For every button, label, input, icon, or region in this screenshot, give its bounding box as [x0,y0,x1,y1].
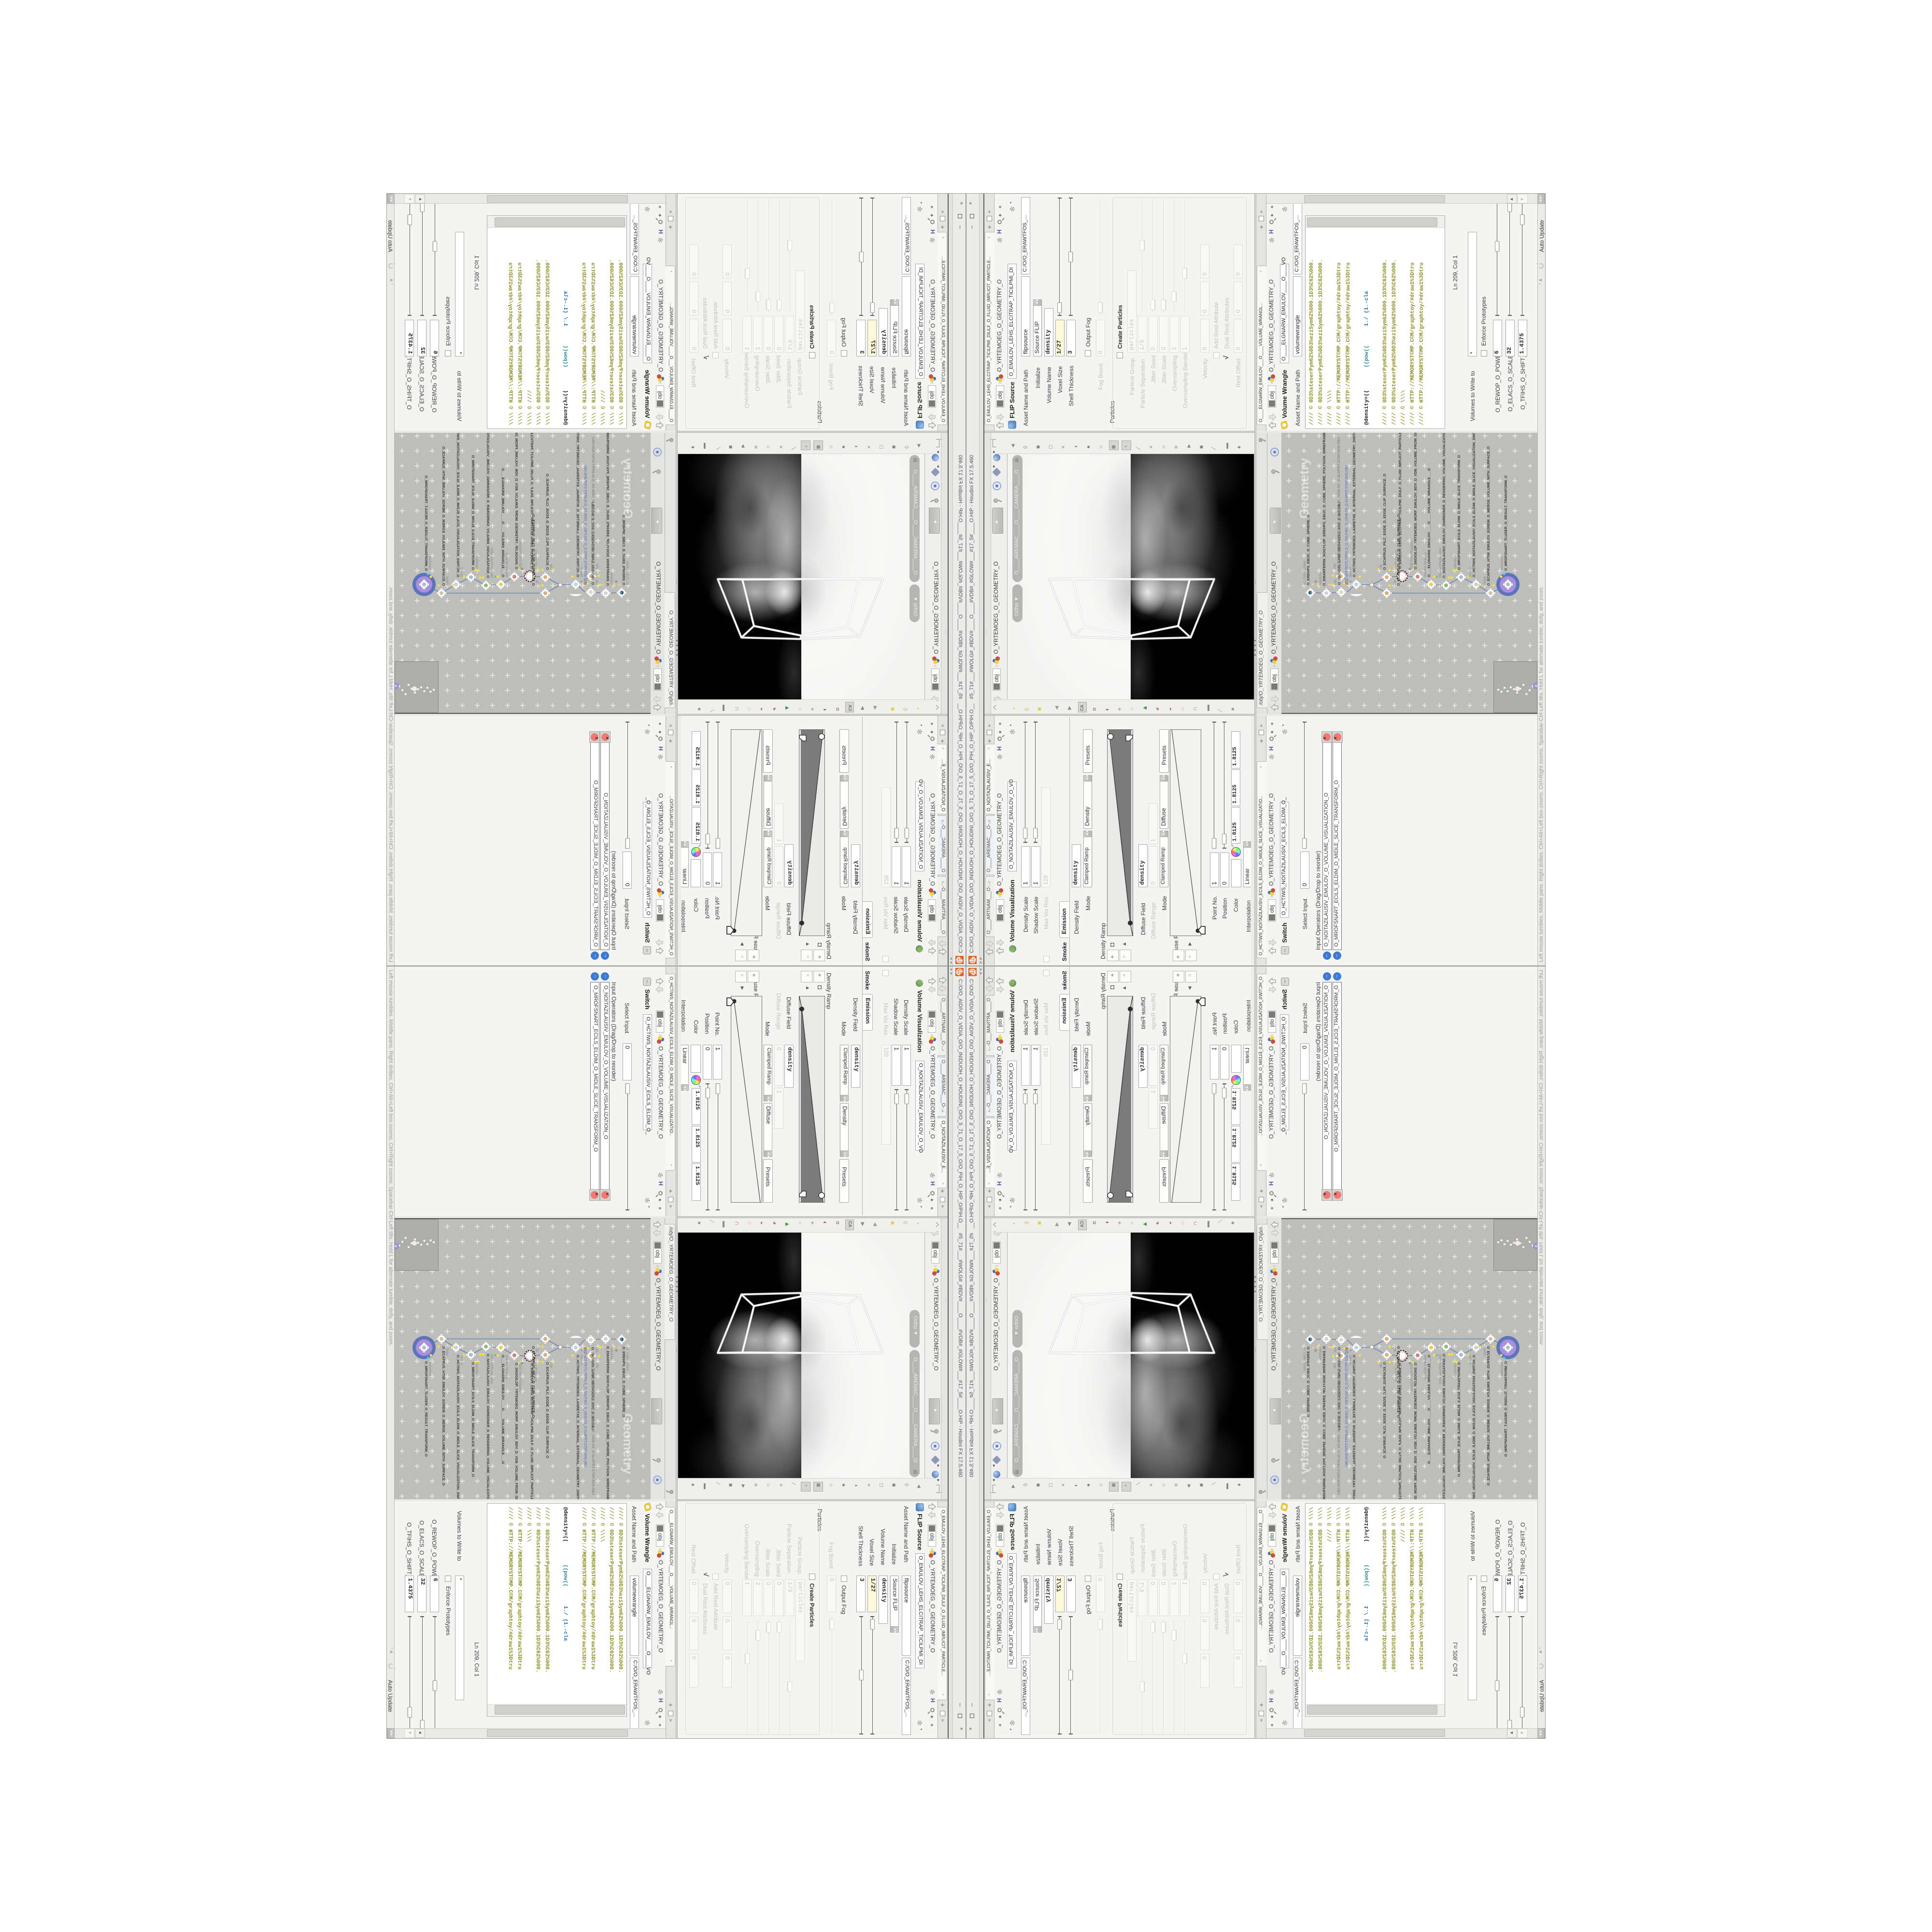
svg-text:O___ELGNARW_EMULOV____O____VOL: O___ELGNARW_EMULOV____O____VOLUME_WRANGL… [501,468,505,577]
svg-text:PolyWire: PolyWire [610,572,613,586]
svg-text:O_ECAFRUS_HTIW_EMULOV_EGREM_O_: O_ECAFRUS_HTIW_EMULOV_EGREM_O_MERGE_VOLU… [1486,446,1491,586]
svg-text:Clip: Clip [549,1362,553,1368]
svg-text:O_NOITAZILAUSIV_EMULOV_GNIREDN: O_NOITAZILAUSIV_EMULOV_GNIREDNER_D_RENDE… [486,433,490,578]
svg-text:Switch: Switch [580,567,583,577]
svg-text:O_EREHPS_EBUC_D_CUBE_SPHERE_O: O_EREHPS_EBUC_D_CUBE_SPHERE_O [622,1347,626,1417]
svg-text:O_NOITAZILAUSIV_EMULOV_GNIREDN: O_NOITAZILAUSIV_EMULOV_GNIREDNER_D_RENDE… [1442,1354,1446,1499]
svg-text:O_MROFSNART_TLUSER_O_RESULT_TR: O_MROFSNART_TLUSER_O_RESULT_TRANSFORM_O [424,475,428,571]
svg-text:O_3D.NO3.PETS.TRPCLS.D_5SLP.BG: O_3D.NO3.PETS.TRPCLS.D_5SLP.BG_O_GEM.SS_… [591,437,596,569]
svg-text:O_MROFSNART_ECILS_ELDIM_O_MIDL: O_MROFSNART_ECILS_ELDIM_O_MIDLE_SLICE_TR… [1457,1362,1461,1477]
svg-text:Clip: Clip [535,580,539,586]
svg-text:O_MROFSNART_TLUSER_O_RESULT_TR: O_MROFSNART_TLUSER_O_RESULT_TRANSFORM_O [1504,1361,1508,1457]
svg-text:VDB from Polygons: VDB from Polygons [518,1363,522,1392]
svg-text:O_EMARFERIW_NOGYLOP_EREHPS_EBU: O_EMARFERIW_NOGYLOP_EREHPS_EBUC_D_CUBE_S… [606,433,610,586]
svg-text:O_ECAFRUS_HTIW_EMULOV_EGREM_O_: O_ECAFRUS_HTIW_EMULOV_EGREM_O_MERGE_VOLU… [441,1346,446,1486]
svg-text:O_ECAFRUS_PILC_EGDE_D_EDGE_CLI: O_ECAFRUS_PILC_EGDE_D_EDGE_CLIP_SURFACE_… [1382,1362,1387,1458]
svg-text:O_HCTIWS_NOITAZILAUSIV_ECILS_E: O_HCTIWS_NOITAZILAUSIV_ECILS_ELDIM_O_MID… [456,433,460,577]
svg-text:VolumeVisualization: VolumeVisualization [490,1354,493,1384]
svg-text:O_EREHPS_EBUC_D_CUBE_SPHERE_O: O_EREHPS_EBUC_D_CUBE_SPHERE_O [1306,1347,1310,1417]
svg-text:O_3D.NO3.PETS.TRPCLS.D_5SLP.BG: O_3D.NO3.PETS.TRPCLS.D_5SLP.BG_O_GEM.SS_… [1336,1363,1341,1495]
svg-text:O_3D.NO3.PETS.TRPCLS.D_5SLP.BG: O_3D.NO3.PETS.TRPCLS.D_5SLP.BG_O_GEM.SS_… [1336,437,1341,569]
svg-text:O_EREHPS_EBUC_D_CUBE_SPHERE_O: O_EREHPS_EBUC_D_CUBE_SPHERE_O [622,515,626,585]
svg-text:O___ELGNARW_EMULOV____O____VOL: O___ELGNARW_EMULOV____O____VOLUME_WRANGL… [501,1355,505,1464]
svg-text:JBO.ND3.PETS.TRPG.S_O_5SLP.BG_: JBO.ND3.PETS.TRPG.S_O_5SLP.BG_O_GEM.SS_D… [583,465,587,585]
svg-text:O_HCTIWS_NOITAZILAUSIV_ECILS_E: O_HCTIWS_NOITAZILAUSIV_ECILS_ELDIM_O_MID… [1472,1355,1476,1499]
svg-text:O_EMULOV_LEHS_ELCITRAP_TICILPM: O_EMULOV_LEHS_ELCITRAP_TICILPMI_DIULF_O_… [530,1363,534,1499]
svg-text:O_EMARFERIW_NOGYLOP_EREHPS_EBU: O_EMARFERIW_NOGYLOP_EREHPS_EBUC_D_CUBE_S… [606,1346,610,1499]
svg-text:O_NOITAZILAUSIV_EMULOV_GNIREDN: O_NOITAZILAUSIV_EMULOV_GNIREDNER_D_RENDE… [1442,433,1446,578]
svg-text:O_EMARFERIW_NOGYLOP_EREHPS_EBU: O_EMARFERIW_NOGYLOP_EREHPS_EBUC_D_CUBE_S… [1322,1346,1326,1499]
svg-text:JBO.ND3.PETS.TRPG.S_O_5SLP.BG_: JBO.ND3.PETS.TRPG.S_O_5SLP.BG_O_GEM.SS_D… [1345,465,1349,585]
svg-text:O_NOITAZILAUSIV_EMULOV_GNIREDN: O_NOITAZILAUSIV_EMULOV_GNIREDNER_D_RENDE… [486,1354,490,1499]
svg-text:Transform: Transform [428,1361,431,1377]
svg-text:O_HCTIWS_YRTEMOEG_LANRETXE_O_I: O_HCTIWS_YRTEMOEG_LANRETXE_O_INTERNAL_EX… [1352,433,1356,577]
svg-text:VolumeVisualization: VolumeVisualization [490,548,493,578]
svg-text:File: File [595,580,598,585]
svg-text:O_3D.NO3.PETS.TRPCLS.D_5SLP.BG: O_3D.NO3.PETS.TRPCLS.D_5SLP.BG_O_GEM.SS_… [591,1363,596,1495]
svg-text:FLIP Source: FLIP Source [534,550,537,569]
svg-text:O_ECAFRUS_PILC_EGDE_D_EDGE_CLI: O_ECAFRUS_PILC_EGDE_D_EDGE_CLIP_SURFACE_… [545,474,550,570]
svg-text:O_HCTIWS_YRTEMOEG_LANRETXE_O_I: O_HCTIWS_YRTEMOEG_LANRETXE_O_INTERNAL_EX… [576,1355,580,1499]
svg-text:File: File [595,1363,598,1368]
svg-text:Transform: Transform [475,1362,478,1378]
svg-text:Merge: Merge [445,1346,449,1356]
svg-text:Volume Wrangle: Volume Wrangle [505,1355,508,1380]
svg-text:Transform: Transform [475,554,478,570]
svg-text:O___ELGNARW_EMULOV____O____VOL: O___ELGNARW_EMULOV____O____VOLUME_WRANGL… [1427,1355,1431,1464]
svg-text:O_ECAFRUS_PILC_EGDE_D_EDGE_CLI: O_ECAFRUS_PILC_EGDE_D_EDGE_CLIP_SURFACE_… [1382,474,1387,570]
svg-text:JBO.ND3.PETS.TRPG.S_O_5SLP.BG_: JBO.ND3.PETS.TRPG.S_O_5SLP.BG_O_GEM.SS_D… [1345,1347,1349,1467]
svg-text:an_CubeSphere: an_CubeSphere [625,1347,629,1371]
svg-text:Switch: Switch [460,1355,463,1365]
svg-text:File: File [595,564,598,569]
svg-text:O_ECAFRUS_HTIW_EMULOV_EGREM_O_: O_ECAFRUS_HTIW_EMULOV_EGREM_O_MERGE_VOLU… [1486,1346,1491,1486]
svg-text:VDB from Polygons: VDB from Polygons [518,540,522,569]
svg-text:O_EMULOV_LEHS_ELCITRAP_TICILPM: O_EMULOV_LEHS_ELCITRAP_TICILPMI_DIULF_O_… [1398,433,1402,569]
svg-text:O_MROFSNART_ECILS_ELDIM_O_MIDL: O_MROFSNART_ECILS_ELDIM_O_MIDLE_SLICE_TR… [471,455,475,570]
svg-text:O_EREHPS_EBUC_D_CUBE_SPHERE_O: O_EREHPS_EBUC_D_CUBE_SPHERE_O [1306,515,1310,585]
svg-text:O_ECAFRUS_HTIW_EMULOV_EGREM_O_: O_ECAFRUS_HTIW_EMULOV_EGREM_O_MERGE_VOLU… [441,446,446,586]
svg-text:O_HCTIWS_NOITAZILAUSIV_ECILS_E: O_HCTIWS_NOITAZILAUSIV_ECILS_ELDIM_O_MID… [456,1355,460,1499]
svg-text:an_CubeSphere: an_CubeSphere [625,561,629,585]
svg-text:O___ELGNARW_EMULOV____O____VOL: O___ELGNARW_EMULOV____O____VOLUME_WRANGL… [1427,468,1431,577]
svg-text:O_EMULOV_LEHS_ELCITRAP_TICILPM: O_EMULOV_LEHS_ELCITRAP_TICILPMI_DIULF_O_… [1398,1363,1402,1499]
svg-text:O_EMULOV_LEHS_ELCITRAP_TICILPM: O_EMULOV_LEHS_ELCITRAP_TICILPMI_DIULF_O_… [530,433,534,569]
svg-text:O_MROFSNART_ECILS_ELDIM_O_MIDL: O_MROFSNART_ECILS_ELDIM_O_MIDLE_SLICE_TR… [471,1362,475,1477]
svg-text:O_HCTIWS_YRTEMOEG_LANRETXE_O_I: O_HCTIWS_YRTEMOEG_LANRETXE_O_INTERNAL_EX… [1352,1355,1356,1499]
svg-text:O_HCTIWS_YRTEMOEG_LANRETXE_O_I: O_HCTIWS_YRTEMOEG_LANRETXE_O_INTERNAL_EX… [576,433,580,577]
svg-text:O_MROFSNART_TLUSER_O_RESULT_TR: O_MROFSNART_TLUSER_O_RESULT_TRANSFORM_O [1504,475,1508,571]
svg-text:O_SNOGILOP_YRTEMOEG_MORF_EMULO: O_SNOGILOP_YRTEMOEG_MORF_EMULOV_BDV_D_VD… [514,433,519,569]
svg-text:PolyWire: PolyWire [610,1346,613,1360]
svg-text:O_SNOGILOP_YRTEMOEG_MORF_EMULO: O_SNOGILOP_YRTEMOEG_MORF_EMULOV_BDV_D_VD… [514,1363,519,1499]
svg-text:File: File [595,1347,598,1352]
svg-text:O_MROFSNART_ECILS_ELDIM_O_MIDL: O_MROFSNART_ECILS_ELDIM_O_MIDLE_SLICE_TR… [1457,455,1461,570]
svg-text:Switch: Switch [580,1355,583,1365]
svg-text:FLIP Source: FLIP Source [534,1363,537,1382]
svg-text:O_MROFSNART_TLUSER_O_RESULT_TR: O_MROFSNART_TLUSER_O_RESULT_TRANSFORM_O [424,1361,428,1457]
svg-text:Volume Wrangle: Volume Wrangle [505,552,508,577]
svg-text:O_ECAFRUS_PILC_EGDE_D_EDGE_CLI: O_ECAFRUS_PILC_EGDE_D_EDGE_CLIP_SURFACE_… [545,1362,550,1458]
svg-text:Switch: Switch [460,567,463,577]
svg-text:Clip: Clip [549,564,553,570]
svg-text:JBO.ND3.PETS.TRPG.S_O_5SLP.BG_: JBO.ND3.PETS.TRPG.S_O_5SLP.BG_O_GEM.SS_D… [583,1347,587,1467]
svg-text:O_HCTIWS_NOITAZILAUSIV_ECILS_E: O_HCTIWS_NOITAZILAUSIV_ECILS_ELDIM_O_MID… [1472,433,1476,577]
svg-text:Transform: Transform [428,555,431,571]
svg-text:O_EMARFERIW_NOGYLOP_EREHPS_EBU: O_EMARFERIW_NOGYLOP_EREHPS_EBUC_D_CUBE_S… [1322,433,1326,586]
svg-text:Merge: Merge [445,576,449,586]
svg-text:Clip: Clip [535,1346,539,1352]
svg-text:O_SNOGILOP_YRTEMOEG_MORF_EMULO: O_SNOGILOP_YRTEMOEG_MORF_EMULOV_BDV_D_VD… [1413,1363,1418,1499]
svg-text:O_SNOGILOP_YRTEMOEG_MORF_EMULO: O_SNOGILOP_YRTEMOEG_MORF_EMULOV_BDV_D_VD… [1413,433,1418,569]
